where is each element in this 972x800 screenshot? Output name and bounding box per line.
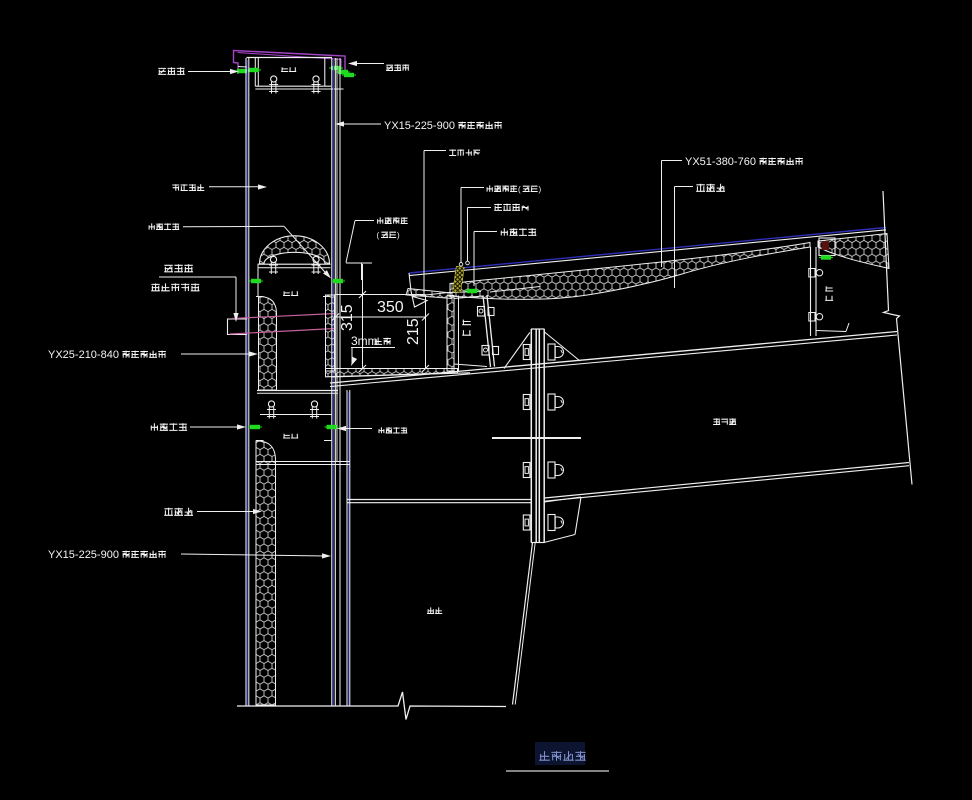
svg-text:YX51-380-760: YX51-380-760 bbox=[685, 156, 756, 168]
svg-text:350: 350 bbox=[377, 299, 404, 316]
svg-text:(: ( bbox=[518, 185, 521, 194]
svg-text:3mm: 3mm bbox=[351, 334, 378, 348]
svg-text:YX15-225-900: YX15-225-900 bbox=[384, 120, 455, 132]
svg-text:YX25-210-840: YX25-210-840 bbox=[48, 349, 119, 361]
svg-text:): ) bbox=[397, 231, 400, 240]
svg-text:215: 215 bbox=[405, 318, 422, 345]
svg-text:315: 315 bbox=[339, 304, 356, 331]
svg-text:YX15-225-900: YX15-225-900 bbox=[48, 549, 119, 561]
svg-text:(: ( bbox=[377, 231, 380, 240]
svg-text:): ) bbox=[539, 185, 542, 194]
